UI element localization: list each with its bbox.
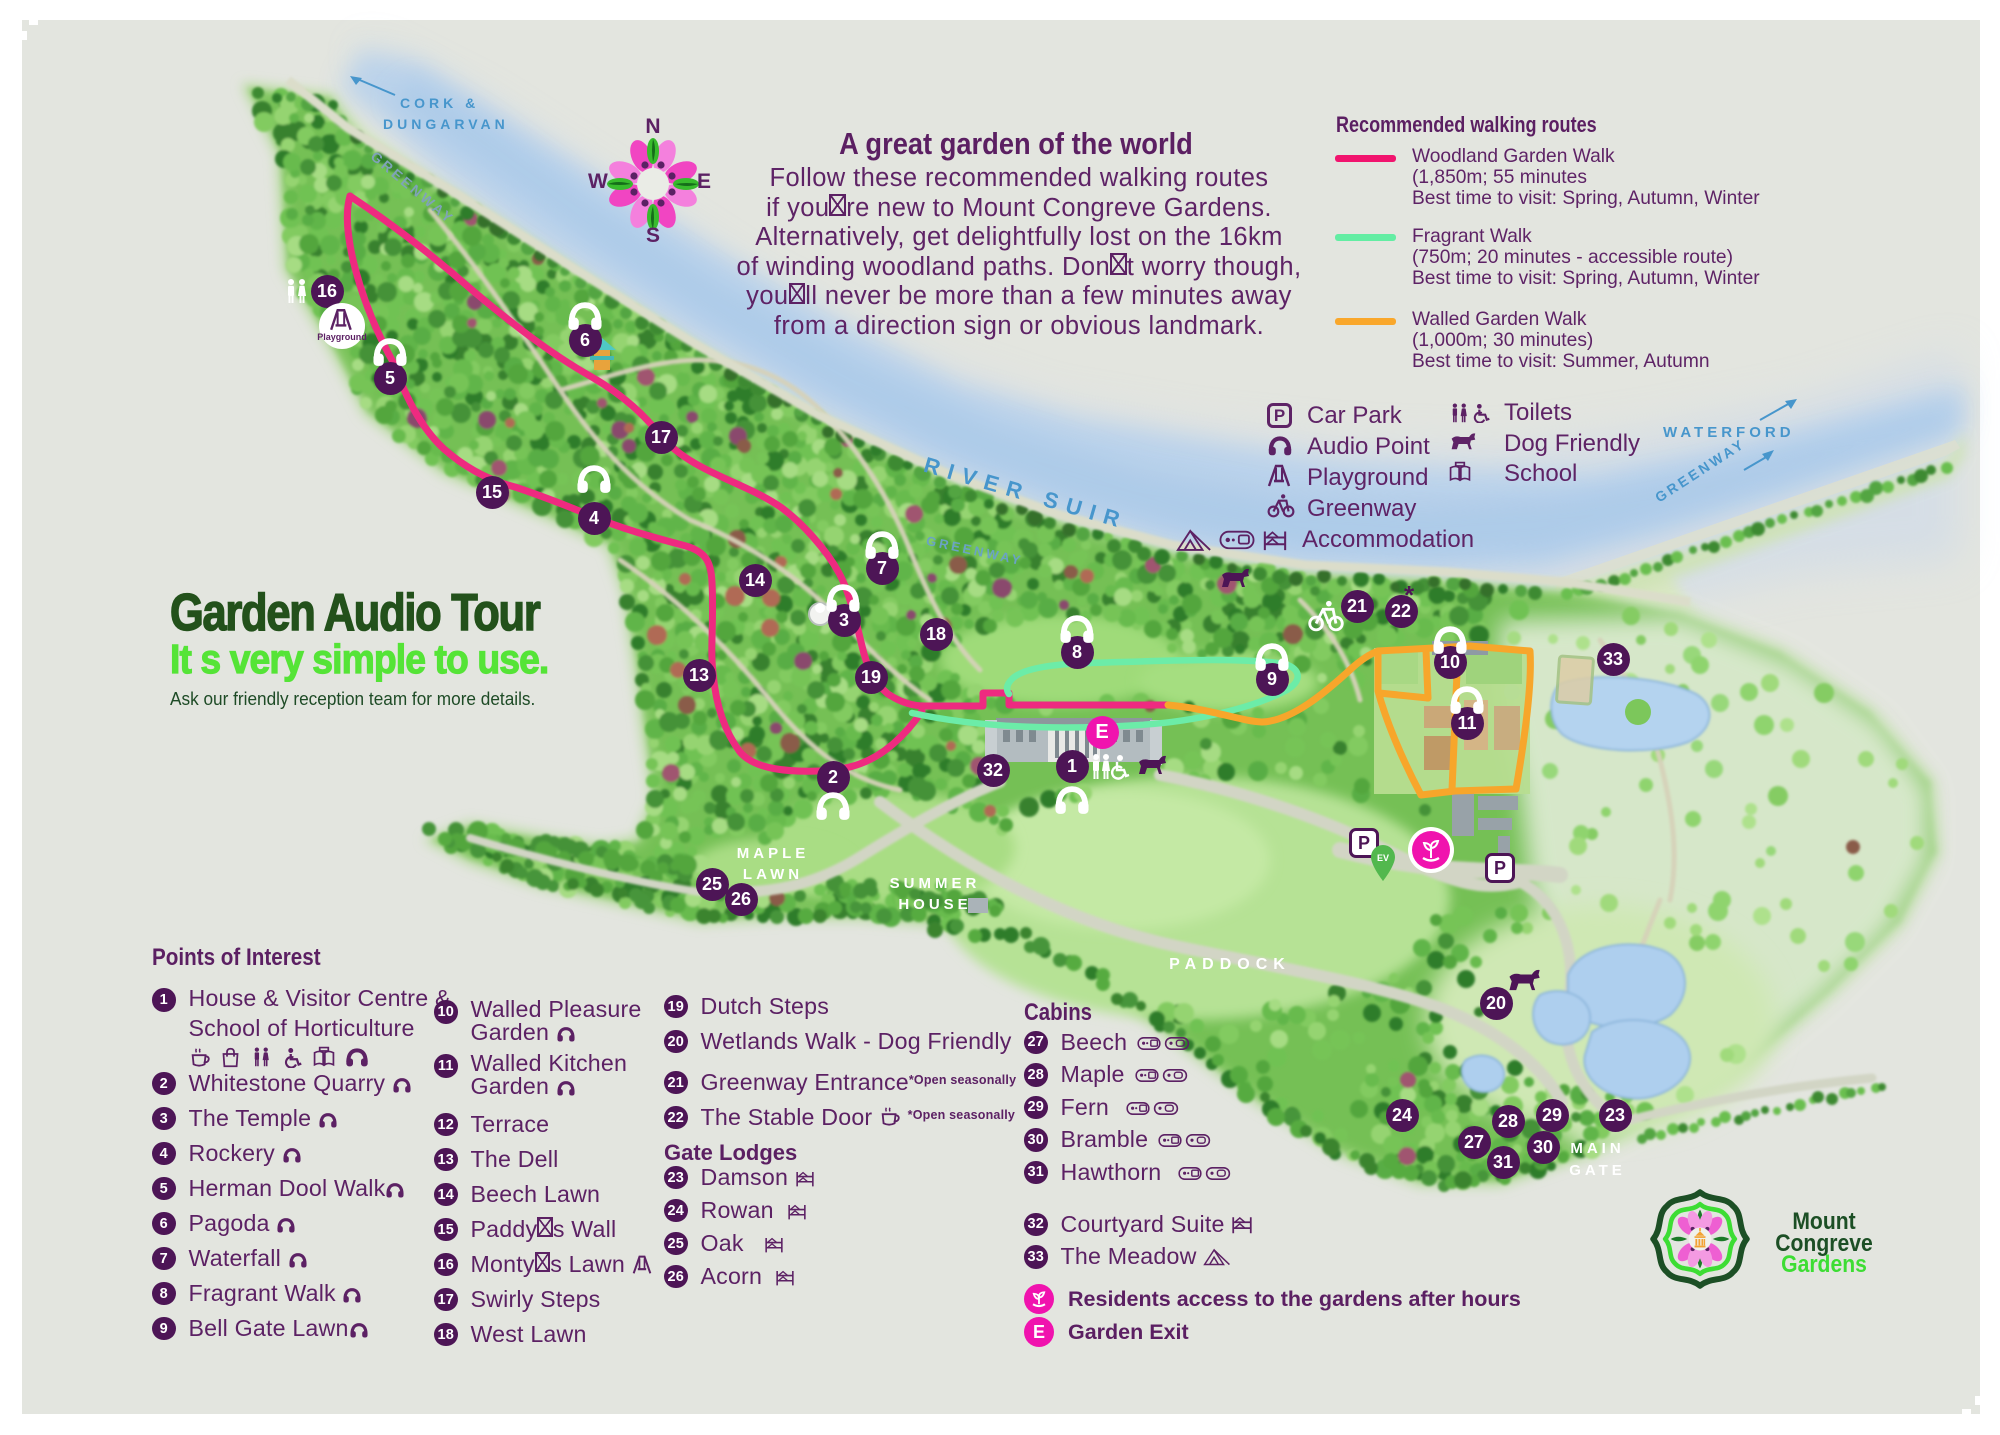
svg-text:EV: EV bbox=[1377, 853, 1389, 863]
